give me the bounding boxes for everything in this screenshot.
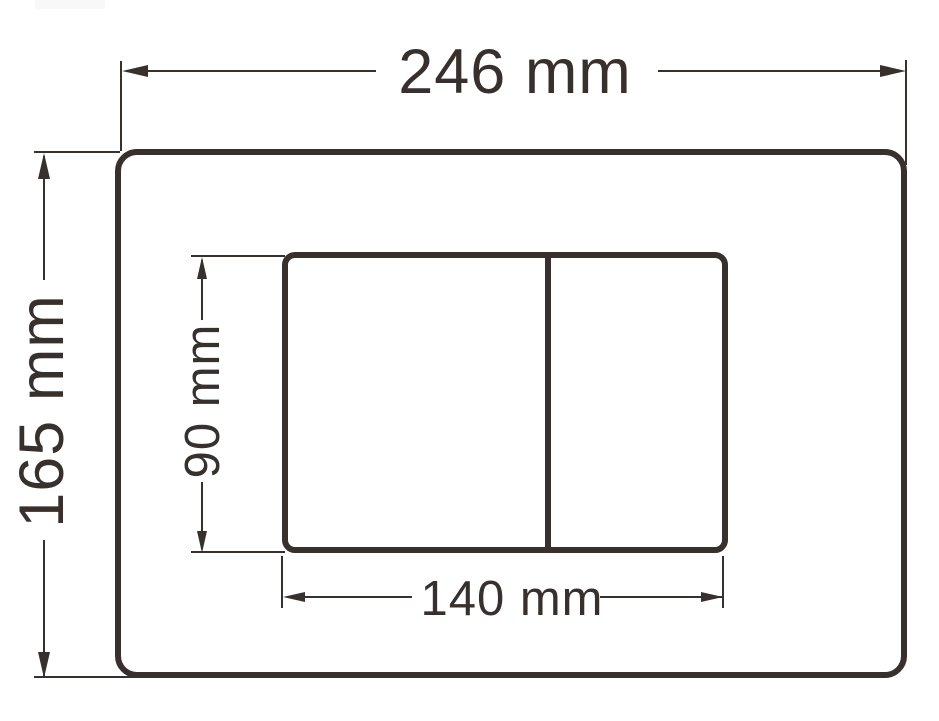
dim-label-plate-width: 246 mm [380, 39, 650, 105]
arrowhead-left-icon [283, 592, 305, 602]
dim-line-plate-width-left-segment [128, 70, 376, 72]
extension-line-plate-height-bottom [34, 676, 174, 678]
arrowhead-right-icon [880, 65, 906, 77]
scan-artifact [35, 0, 105, 9]
arrowhead-up-icon [197, 257, 207, 279]
arrowhead-down-icon [38, 652, 50, 678]
drawing-canvas: 246 mm 165 mm 90 mm 140 mm [0, 0, 939, 721]
arrowhead-left-icon [122, 65, 148, 77]
dim-line-plate-width-right-segment [658, 70, 882, 72]
dim-label-buttons-height: 90 mm [175, 291, 231, 511]
button-divider-line [545, 258, 551, 547]
arrowhead-right-icon [701, 592, 723, 602]
dim-label-plate-height: 165 mm [9, 276, 75, 546]
arrowhead-up-icon [38, 153, 50, 179]
button-panel-outline [282, 252, 728, 553]
arrowhead-down-icon [197, 531, 207, 553]
dim-label-buttons-width: 140 mm [402, 571, 622, 627]
dim-line-buttons-width-left-segment [288, 596, 412, 598]
